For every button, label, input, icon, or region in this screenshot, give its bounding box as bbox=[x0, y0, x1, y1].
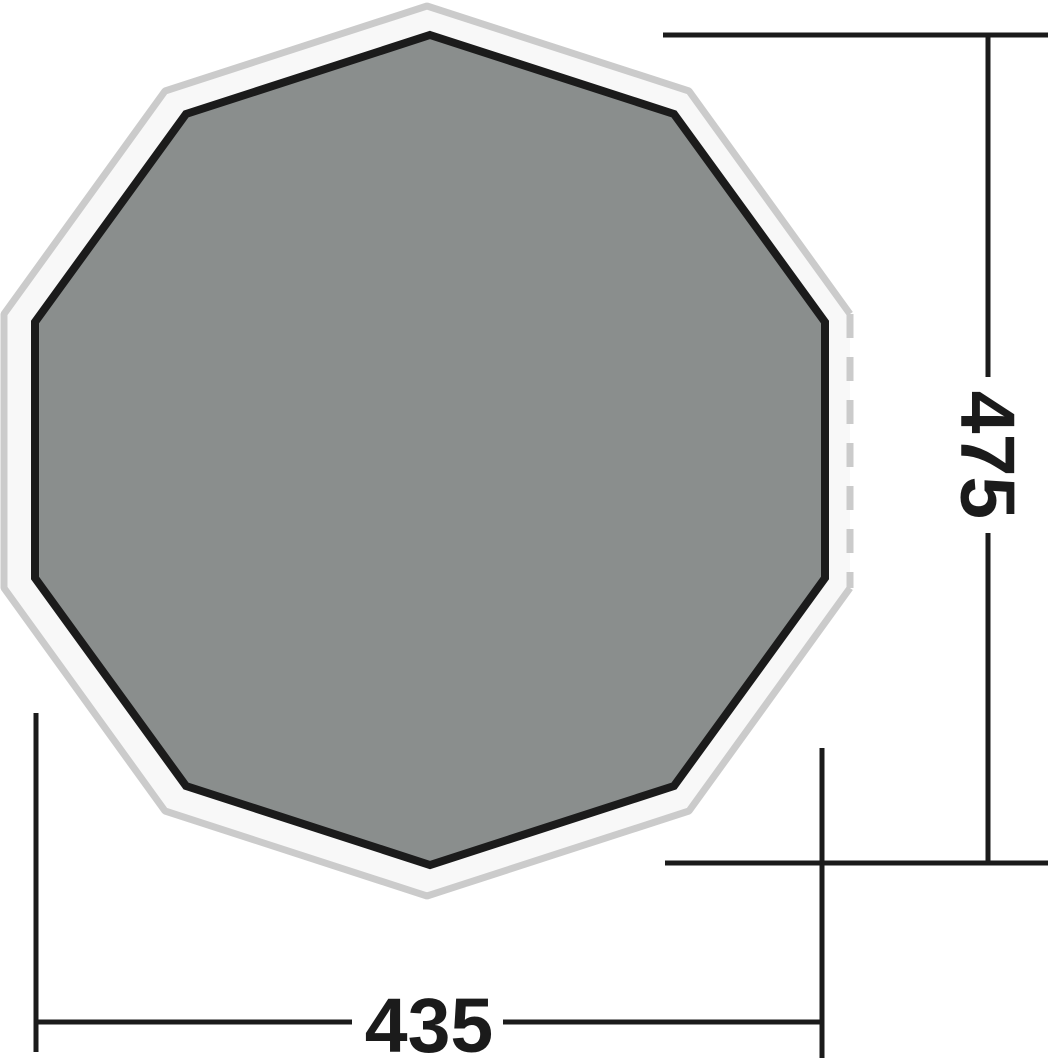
height-dimension-label: 475 bbox=[944, 391, 1030, 519]
groundsheet-polygon bbox=[35, 35, 825, 865]
tent-footprint-dimension-diagram: 475 435 bbox=[0, 0, 1048, 1060]
width-dimension-label: 435 bbox=[365, 983, 493, 1060]
